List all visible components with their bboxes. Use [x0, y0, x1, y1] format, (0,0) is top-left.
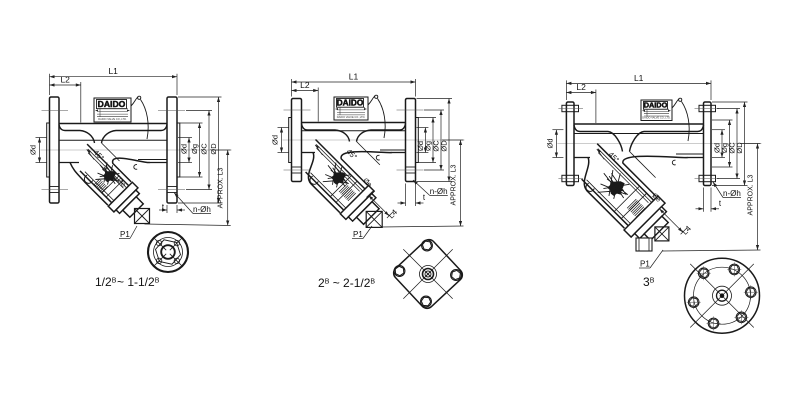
- svg-text:APPROX. L3: APPROX. L3: [748, 174, 755, 215]
- svg-text:L2: L2: [60, 75, 70, 85]
- svg-text:ØD: ØD: [440, 140, 449, 152]
- svg-text:Ød: Ød: [29, 145, 38, 155]
- svg-text:Ød: Ød: [545, 138, 554, 148]
- svg-text:DAIDO: DAIDO: [98, 99, 126, 109]
- svg-text:L2: L2: [300, 80, 310, 90]
- svg-text:Øg: Øg: [190, 144, 199, 154]
- svg-text:Ød: Ød: [271, 135, 280, 145]
- svg-text:L2: L2: [576, 82, 586, 92]
- svg-text:DAIDO VALVE CO.,LTD.: DAIDO VALVE CO.,LTD.: [642, 116, 671, 120]
- svg-text:DAIDO: DAIDO: [337, 99, 364, 108]
- svg-text:L1: L1: [634, 73, 644, 83]
- svg-text:DAIDO: DAIDO: [644, 101, 668, 110]
- svg-text:ØD: ØD: [209, 143, 218, 155]
- svg-text:L1: L1: [108, 66, 118, 76]
- svg-text:n-Øh: n-Øh: [430, 187, 448, 196]
- svg-text:L1: L1: [349, 72, 359, 82]
- svg-text:n-Øh: n-Øh: [723, 189, 741, 198]
- svg-text:APPROX. L3: APPROX. L3: [451, 164, 458, 205]
- svg-text:n-Øh: n-Øh: [193, 205, 211, 214]
- svg-text:DAIDO VALVE CO.,LTD.: DAIDO VALVE CO.,LTD.: [337, 115, 366, 119]
- svg-text:Ød: Ød: [180, 144, 189, 154]
- svg-text:DAIDO VALVE CO.,LTD.: DAIDO VALVE CO.,LTD.: [98, 117, 127, 121]
- svg-text:P1: P1: [120, 230, 130, 239]
- svg-text:APPROX. L3: APPROX. L3: [218, 167, 225, 208]
- svg-text:P1: P1: [640, 260, 650, 269]
- svg-text:P1: P1: [353, 230, 363, 239]
- svg-text:ØC: ØC: [200, 143, 209, 155]
- svg-text:~ 1-1/2B: ~ 1-1/2B: [117, 275, 160, 289]
